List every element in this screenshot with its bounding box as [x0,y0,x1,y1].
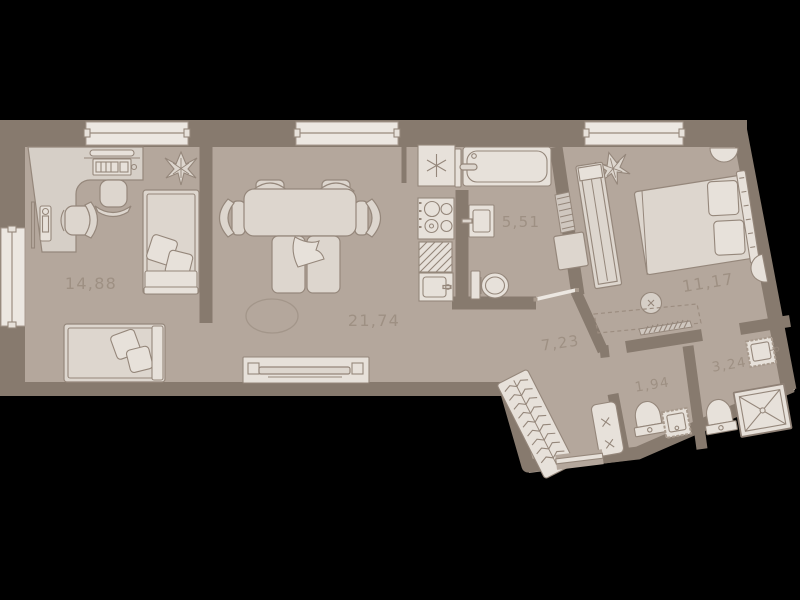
tv [259,367,350,374]
ceiling-lamp-icon [641,293,662,314]
floor-plan: 14,88 21,74 5,51 7,23 11,17 1,94 3,24 [0,0,800,600]
kitchen-worktop [419,242,452,272]
tv-console [243,357,369,383]
window-bedroom-top [583,122,685,145]
bathroom-area-label: 5,51 [502,213,541,231]
stove [418,198,454,239]
bathtub [460,147,551,186]
hall-cabinet [554,232,589,270]
desktop-computer [93,159,137,175]
kids-room-area-label: 14,88 [65,274,117,293]
kitchen-sink [419,273,453,301]
window-living-top [294,122,400,145]
dining-table [244,189,356,236]
living-area-label: 21,74 [348,311,400,330]
washbasin [662,408,691,438]
floor-lamp [40,206,51,241]
window-left-room-top [84,122,190,145]
fridge [418,145,455,186]
window-left-wall [1,226,25,328]
desk-shelf [90,150,134,156]
toilet [471,271,509,299]
floor-plan-canvas: 14,88 21,74 5,51 7,23 11,17 1,94 3,24 [0,0,800,600]
single-bed-vertical [143,190,199,294]
single-bed-horizontal [64,324,165,382]
shower-cabin [734,384,792,437]
